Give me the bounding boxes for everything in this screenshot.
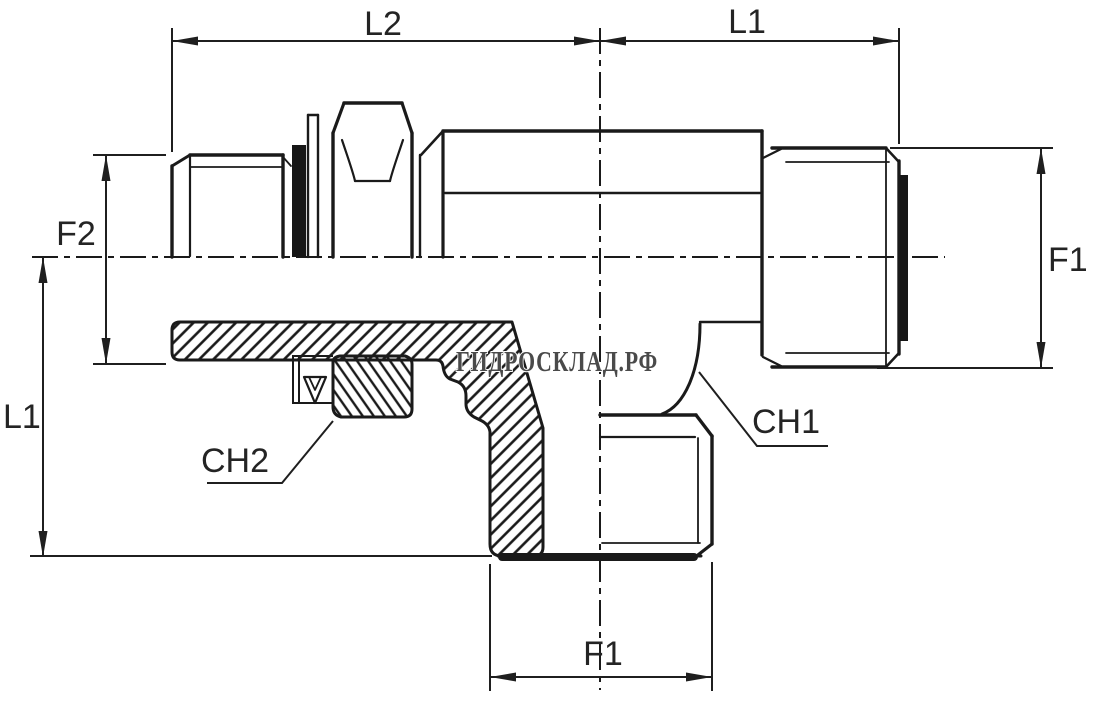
locknut-section-hatch <box>333 356 412 417</box>
callout-label-ch2: CH2 <box>201 442 269 480</box>
callout-label-ch1: CH1 <box>752 403 820 441</box>
dim-label-l2: L2 <box>364 5 402 43</box>
left-port <box>172 155 291 257</box>
dimension-f1-right <box>1037 148 1046 368</box>
locknut <box>333 103 412 257</box>
tee-fitting-technical-drawing: L2 L1 F2 L1 F1 F1 CH1 CH2 ГИДРОСКЛАД.РФ <box>0 0 1116 723</box>
bonded-seal <box>292 115 318 257</box>
seal-washer-section <box>293 356 333 403</box>
dim-label-f1-right: F1 <box>1048 241 1088 279</box>
dim-label-l1-top: L1 <box>728 3 766 41</box>
dimension-f2 <box>102 155 111 364</box>
watermark-text: ГИДРОСКЛАД.РФ <box>456 347 658 378</box>
dim-label-f1-bottom: F1 <box>583 635 623 673</box>
dim-label-l1-left: L1 <box>3 398 41 436</box>
dim-label-f2: F2 <box>56 215 96 253</box>
drawing-canvas: L2 L1 F2 L1 F1 F1 CH1 CH2 ГИДРОСКЛАД.РФ <box>0 0 1116 723</box>
dimension-labels: L2 L1 F2 L1 F1 F1 CH1 CH2 <box>3 3 1088 673</box>
